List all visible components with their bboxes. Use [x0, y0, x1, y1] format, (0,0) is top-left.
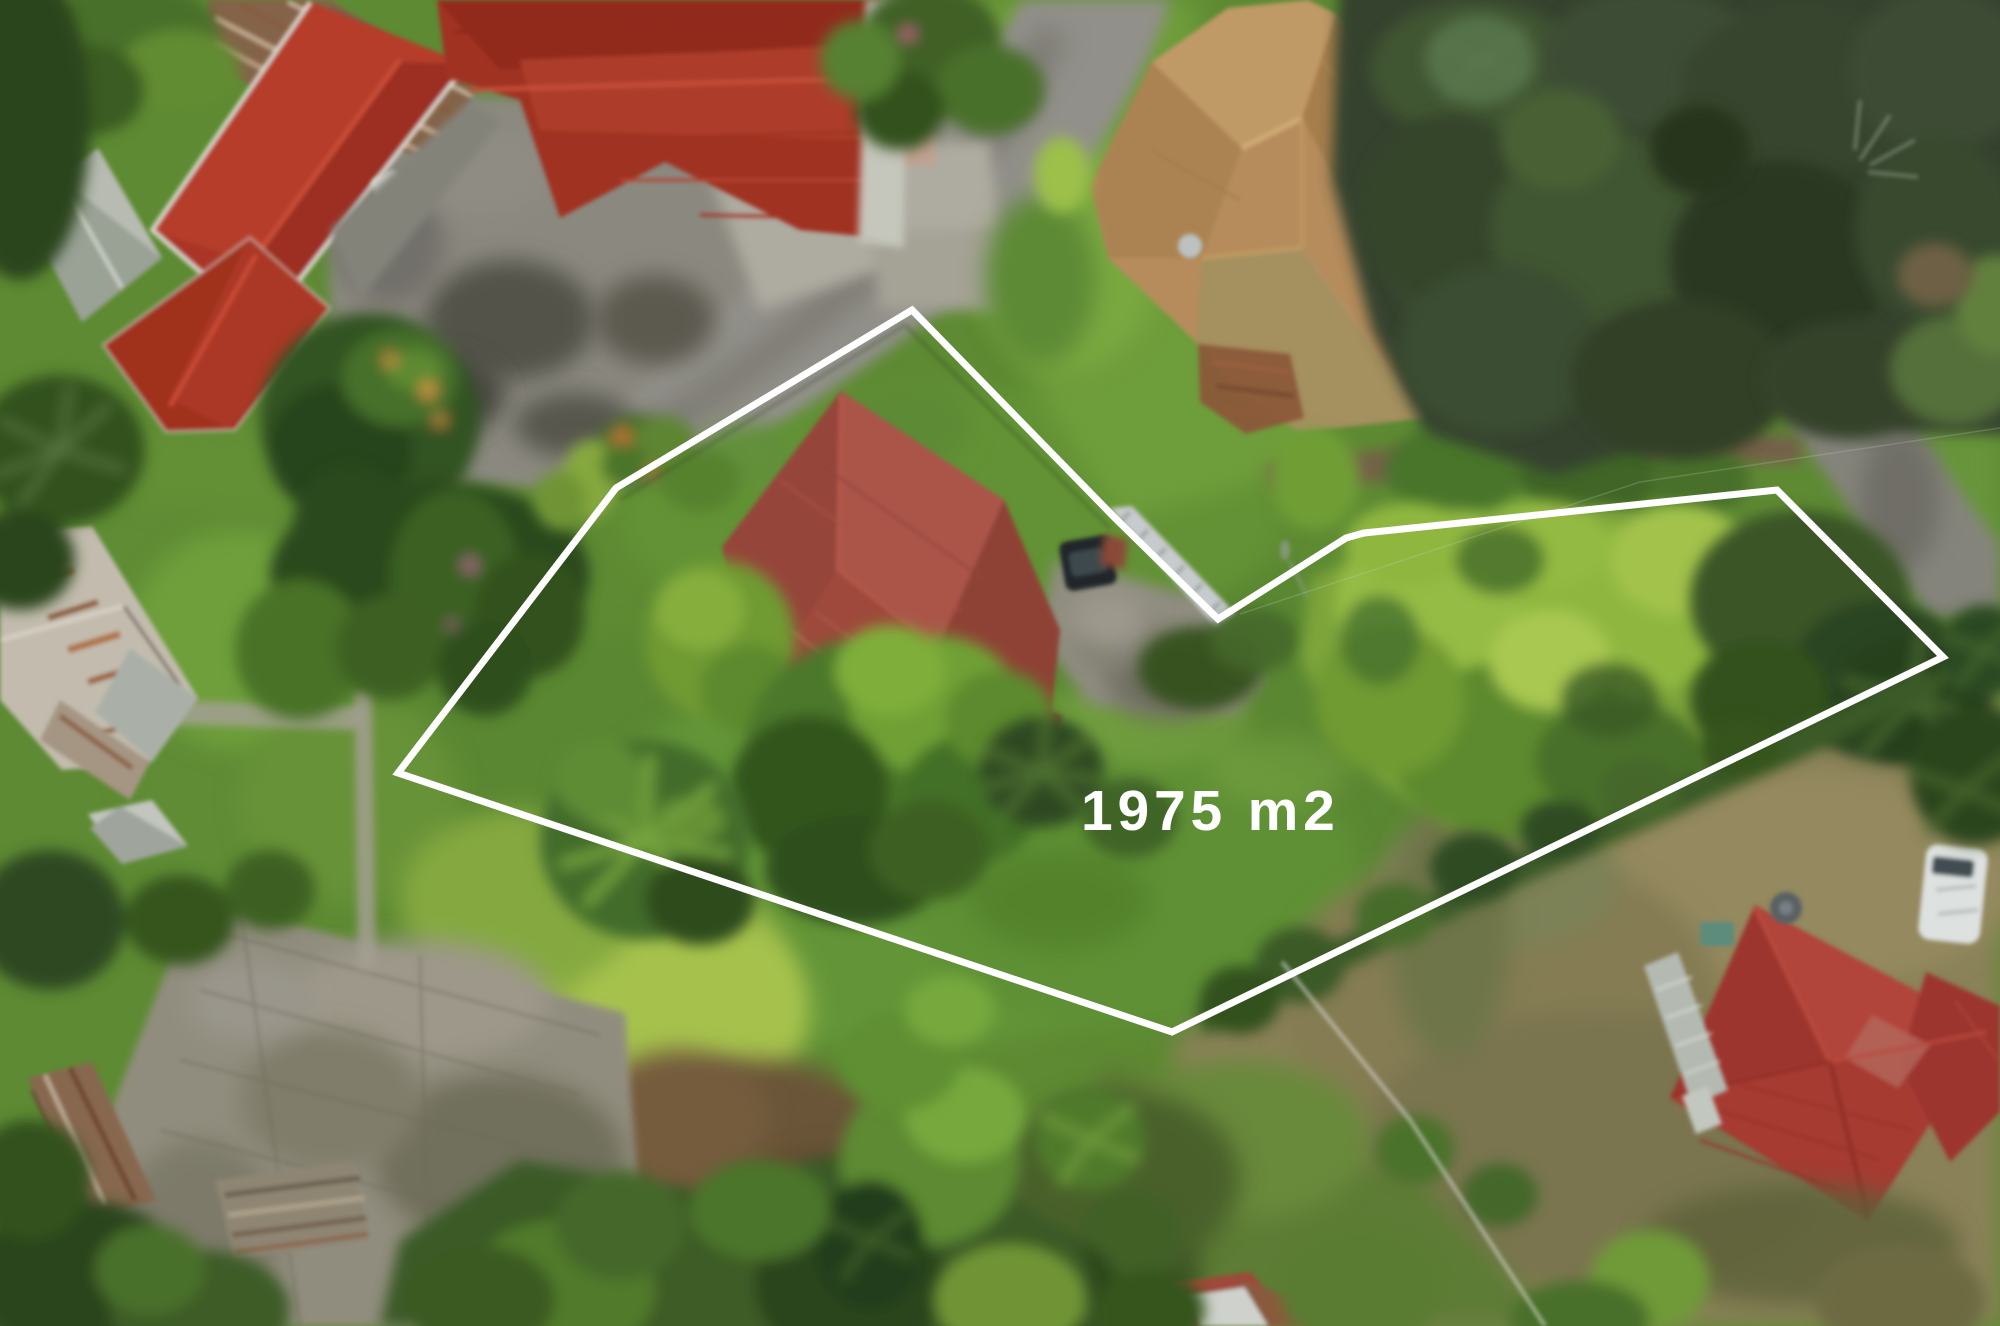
- svg-text:1975 m2: 1975 m2: [1081, 779, 1340, 843]
